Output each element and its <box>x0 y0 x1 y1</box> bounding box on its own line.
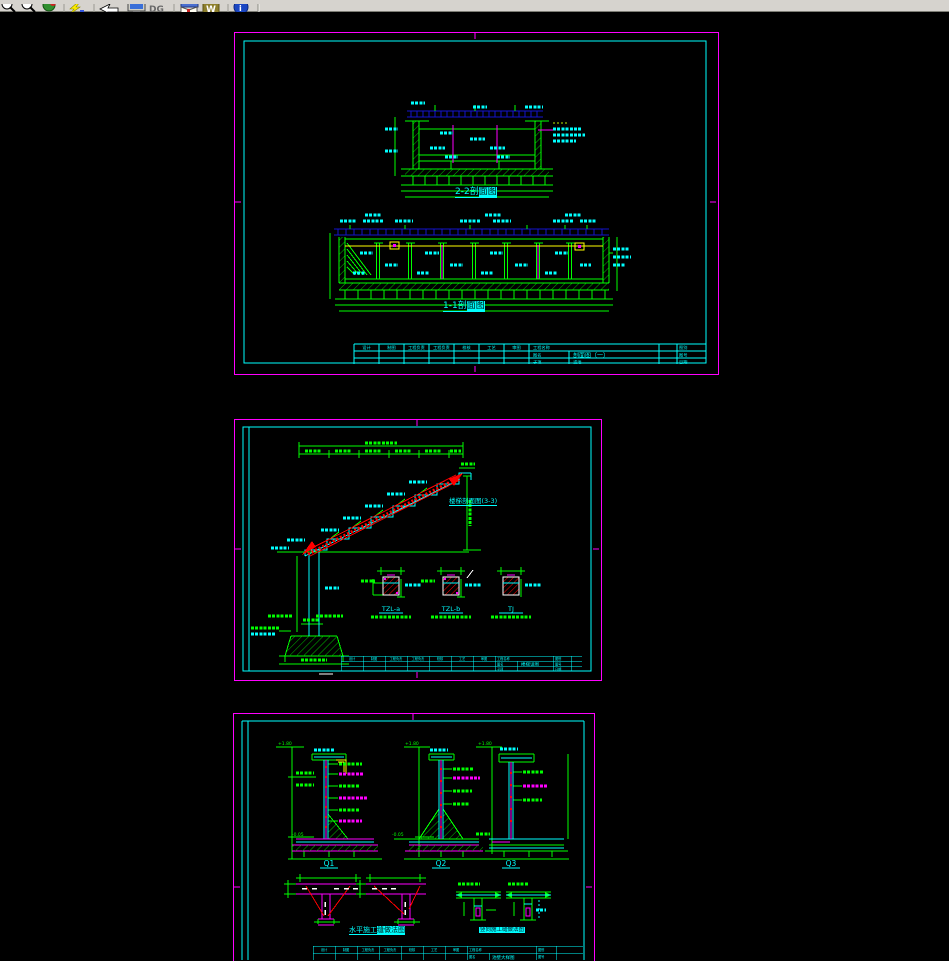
svg-text:设计: 设计 <box>362 344 370 351</box>
section-1-1-drawing <box>330 215 631 311</box>
elevation-mark: +1.80 <box>405 741 419 747</box>
svg-text:图号: 图号 <box>538 954 544 959</box>
detail-label: TZL-b <box>441 605 460 613</box>
svg-text:工艺: 工艺 <box>431 947 437 952</box>
dimension-text <box>340 215 631 273</box>
svg-text:设计: 设计 <box>349 656 356 661</box>
svg-text:图别: 图别 <box>555 656 561 661</box>
stair-section-title: 楼梯剖面图(3-3) <box>449 498 497 506</box>
stair-section-drawing <box>251 442 481 664</box>
detail-label: TJ <box>507 605 514 613</box>
svg-text:图号: 图号 <box>555 662 561 667</box>
svg-text:日期: 日期 <box>679 360 687 366</box>
wall-label: Q3 <box>506 859 517 868</box>
joint-caption-left: 水平施工缝做法图 <box>349 927 405 935</box>
drawing-sheet-3: +1.80 -0.05 Q1 +1.80 -0.05 Q2 <box>233 713 595 961</box>
section-2-2-title: 2-2剖面图 <box>455 188 497 198</box>
svg-text:校核: 校核 <box>462 344 471 351</box>
svg-text:子项: 子项 <box>533 359 542 366</box>
rebar-label <box>476 772 544 834</box>
svg-text:图号: 图号 <box>679 353 687 359</box>
svg-text:工程名称: 工程名称 <box>497 656 511 661</box>
elevation-mark: -0.05 <box>392 832 404 838</box>
wall-detail-q1: +1.80 -0.05 Q1 <box>276 741 382 868</box>
joint-caption-right: 竖向施工缝做法图 <box>479 927 525 933</box>
wall-detail-q3: +1.80 Q3 <box>476 741 569 868</box>
svg-text:工程负责: 工程负责 <box>412 656 425 661</box>
section-2-2-drawing <box>385 103 585 197</box>
title-block: 设计 制图 工程负责 工程负责 校核 工艺 审图 工程名称 图名 池壁大样图 图… <box>313 946 583 960</box>
svg-text:工程名称: 工程名称 <box>469 947 483 952</box>
rebar-label <box>339 774 367 821</box>
svg-text:工程负责: 工程负责 <box>390 656 403 661</box>
wall-label: Q1 <box>324 859 335 868</box>
toolbar: DG W i <box>0 0 949 12</box>
svg-text:审图: 审图 <box>481 656 487 661</box>
svg-text:工艺: 工艺 <box>487 345 495 350</box>
svg-text:设计: 设计 <box>321 947 328 952</box>
rebar-label <box>453 769 474 804</box>
elevation-mark: +1.80 <box>278 741 292 747</box>
drawing-canvas[interactable]: 设计 制图 工程负责 工程负责 校核 工艺 审图 工程名称 图名 子项 剖面图（… <box>0 12 949 960</box>
svg-text:图别: 图别 <box>679 344 687 351</box>
svg-text:工程负责: 工程负责 <box>384 947 397 952</box>
drawing-name: 剖面图（一） <box>573 352 609 360</box>
zoom-extents-icon[interactable] <box>43 4 56 11</box>
zoom-in-icon[interactable] <box>2 4 15 12</box>
joint-details-right <box>456 884 551 920</box>
svg-text:图名: 图名 <box>533 352 541 359</box>
drawing-name: 池壁大样图 <box>492 954 515 960</box>
inner-frame <box>243 427 591 671</box>
wall-label: Q2 <box>436 859 447 868</box>
zoom-out-icon[interactable] <box>22 4 35 12</box>
svg-text:日期: 日期 <box>555 667 561 672</box>
svg-text:图名: 图名 <box>469 954 475 959</box>
svg-text:工程名称: 工程名称 <box>533 344 550 351</box>
svg-text:滤池: 滤池 <box>573 359 582 366</box>
joint-details-left <box>284 874 426 925</box>
section-1-1-title: 1-1剖面图 <box>443 302 485 312</box>
drawing-sheet-1: 设计 制图 工程负责 工程负责 校核 工艺 审图 工程名称 图名 子项 剖面图（… <box>234 32 719 375</box>
svg-text:校核: 校核 <box>409 947 416 952</box>
stair-beam-details: TZL-a TZL-b TJ <box>361 567 541 617</box>
svg-text:图别: 图别 <box>538 947 544 952</box>
svg-text:图名: 图名 <box>497 662 503 667</box>
svg-text:工程负责: 工程负责 <box>362 947 375 952</box>
svg-text:工程负责: 工程负责 <box>408 344 425 351</box>
drawing-name: 楼梯详图 <box>521 661 539 668</box>
inner-frame <box>244 41 706 363</box>
inner-frame <box>242 721 584 960</box>
svg-text:制图: 制图 <box>343 947 349 952</box>
svg-text:审图: 审图 <box>512 344 520 351</box>
svg-text:工程负责: 工程负责 <box>433 344 450 351</box>
svg-text:工艺: 工艺 <box>459 656 465 661</box>
svg-text:制图: 制图 <box>387 344 395 351</box>
dimension-text <box>251 482 427 634</box>
title-block: 设计 制图 工程负责 工程负责 校核 工艺 审图 工程名称 图名 子项 剖面图（… <box>354 344 706 366</box>
wall-detail-q2: +1.80 -0.05 Q2 <box>392 741 484 868</box>
detail-label: TZL-a <box>381 605 400 613</box>
elevation-mark: +1.80 <box>478 741 492 747</box>
svg-text:审图: 审图 <box>453 947 459 952</box>
rebar-label <box>296 764 362 810</box>
svg-text:校核: 校核 <box>437 656 444 661</box>
centering-marks <box>235 33 716 372</box>
drawing-sheet-2: TZL-a TZL-b TJ 设计 制图 工程负责 工程负责 校核 工艺 审图 … <box>234 419 602 681</box>
elevation-mark: -0.05 <box>292 832 304 838</box>
svg-text:子项: 子项 <box>497 667 504 672</box>
svg-text:制图: 制图 <box>371 656 377 661</box>
